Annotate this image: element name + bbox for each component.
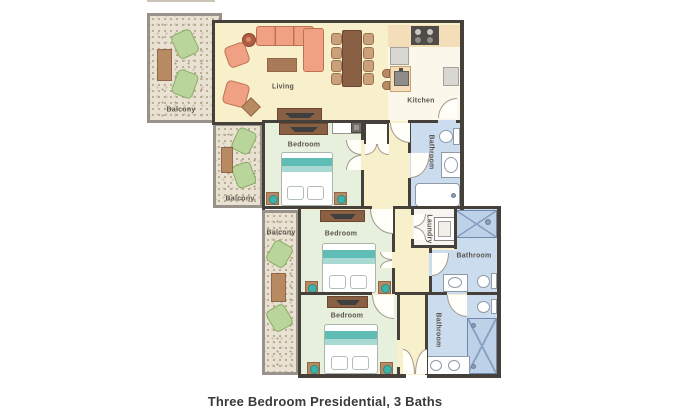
- dining-chair: [363, 47, 374, 59]
- wall: [361, 170, 364, 207]
- dining-chair: [331, 47, 342, 59]
- label-balcony-2: Balcony: [226, 196, 255, 203]
- wall: [397, 295, 400, 340]
- label-balcony-1: Balcony: [167, 107, 196, 114]
- nightstand: [266, 192, 279, 205]
- bathtub: [415, 183, 460, 207]
- wall: [262, 122, 265, 210]
- wall: [393, 206, 410, 209]
- label-living: Living: [272, 84, 294, 91]
- shower-head: [485, 219, 491, 225]
- tv-screen: [290, 127, 318, 132]
- hall-closet: [364, 122, 389, 144]
- nightstand: [378, 281, 391, 294]
- wall: [392, 268, 395, 294]
- dining-chair: [331, 73, 342, 85]
- toilet-bowl: [477, 301, 490, 313]
- toilet-tank: [453, 128, 460, 145]
- label-balcony-3: Balcony: [267, 230, 296, 237]
- balcony-table: [271, 273, 286, 302]
- wall: [408, 178, 411, 208]
- shower-large: [467, 318, 497, 374]
- bar-stool: [382, 69, 390, 78]
- tub-faucet: [451, 193, 456, 198]
- bar-stool: [382, 81, 390, 90]
- kitchen-island: [390, 66, 411, 92]
- lamp: [337, 195, 346, 204]
- wall: [212, 20, 215, 125]
- wall: [467, 292, 500, 295]
- dresser-bedroom-3: [327, 296, 368, 308]
- wall: [410, 120, 438, 123]
- washer-door: [438, 221, 451, 237]
- tv-screen: [285, 113, 315, 118]
- bar-sink-basin: [354, 125, 359, 130]
- dresser-bedroom-1: [279, 123, 328, 135]
- kitchen-sink: [394, 71, 409, 86]
- label-bedroom-3: Bedroom: [331, 313, 363, 320]
- sofa-chaise: [303, 28, 324, 72]
- pillow: [287, 186, 304, 200]
- stove: [411, 26, 439, 45]
- dining-table: [342, 30, 362, 87]
- label-bedroom-2: Bedroom: [325, 231, 357, 238]
- sink-basin: [448, 277, 462, 288]
- wall: [456, 120, 463, 123]
- pillow: [329, 275, 346, 289]
- balcony-table: [221, 147, 233, 173]
- top-crop-fragment: [147, 0, 215, 2]
- wall: [262, 206, 302, 209]
- shower-head: [471, 364, 476, 369]
- lamp: [269, 195, 278, 204]
- shower-head: [471, 323, 476, 328]
- burner: [427, 29, 433, 35]
- dining-chair: [363, 60, 374, 72]
- dining-chair: [331, 33, 342, 45]
- nightstand: [334, 192, 347, 205]
- wall: [212, 20, 463, 23]
- washer: [434, 217, 455, 241]
- tv-screen: [336, 300, 360, 305]
- label-laundry: Laundry: [426, 214, 433, 243]
- balcony-table: [157, 49, 172, 81]
- floor-plan: Living Kitchen Bedroom Bedroom Bedroom B…: [0, 0, 680, 408]
- wall: [395, 292, 447, 295]
- wall: [298, 292, 372, 295]
- dining-chair: [363, 73, 374, 85]
- wall: [454, 209, 457, 249]
- dining-chair: [331, 60, 342, 72]
- label-bedroom-1: Bedroom: [288, 142, 320, 149]
- sink-basin: [448, 360, 460, 371]
- lamp: [381, 284, 390, 293]
- burner: [415, 29, 421, 35]
- plan-caption: Three Bedroom Presidential, 3 Baths: [0, 395, 650, 408]
- pillow: [352, 356, 369, 370]
- sink-basin: [430, 360, 442, 371]
- coffee-table: [267, 58, 297, 72]
- pillow: [331, 356, 348, 370]
- wall: [397, 367, 400, 375]
- tv-screen: [330, 214, 356, 219]
- toilet-bowl: [439, 130, 453, 143]
- label-bathroom-3: Bathroom: [435, 312, 442, 347]
- dining-chair: [363, 33, 374, 45]
- lamp: [383, 365, 392, 374]
- sink-basin: [444, 157, 458, 173]
- wall: [460, 206, 500, 209]
- wall: [427, 374, 500, 378]
- burner: [427, 37, 433, 43]
- pillow: [350, 275, 367, 289]
- toilet-bowl: [477, 275, 490, 288]
- pillow: [307, 186, 324, 200]
- refrigerator: [443, 67, 459, 86]
- table-center: [246, 37, 251, 42]
- wall: [429, 276, 432, 294]
- wall: [298, 206, 372, 209]
- wall: [212, 122, 265, 125]
- lamp: [310, 365, 319, 374]
- dresser-bedroom-2: [320, 210, 365, 222]
- label-kitchen: Kitchen: [407, 98, 434, 105]
- shower: [456, 210, 497, 238]
- faucet: [399, 68, 403, 71]
- wall: [411, 245, 457, 248]
- label-bathroom-2: Bathroom: [456, 253, 491, 260]
- wall: [460, 20, 464, 210]
- burner: [415, 37, 421, 43]
- label-bathroom-1: Bathroom: [428, 134, 435, 169]
- wall: [298, 374, 406, 378]
- dishwasher: [390, 47, 409, 65]
